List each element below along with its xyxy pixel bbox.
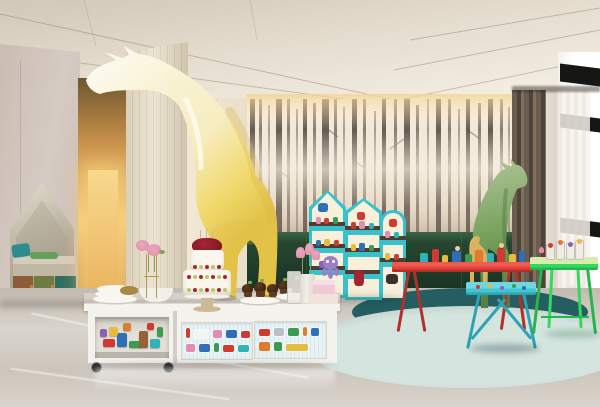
vehicle-sticker (238, 345, 249, 352)
playroom-scene (0, 0, 600, 407)
train-sticker (286, 344, 308, 351)
cart-block (157, 327, 163, 337)
cart-block (123, 323, 131, 331)
cart-floor-shadow (95, 352, 169, 358)
plate (240, 297, 280, 304)
vehicle-sticker (223, 345, 234, 352)
vehicle-sticker (186, 328, 190, 338)
birthday-cake (178, 228, 236, 312)
floor-reflection (95, 368, 335, 392)
vehicle-sticker (303, 327, 307, 336)
tulip (312, 250, 320, 260)
cart-block (103, 339, 115, 347)
toy-cart-opening (95, 317, 169, 358)
vehicle-sticker (259, 342, 270, 351)
vehicle-sticker (311, 328, 319, 336)
cart-block (117, 333, 127, 347)
cabinet-panel-left (181, 322, 253, 360)
cupcake-plate (240, 282, 280, 304)
white-counter (88, 311, 337, 363)
vehicle-sticker (226, 330, 237, 338)
plate (93, 295, 137, 303)
vehicle-sticker (288, 328, 299, 336)
cupcake-garnish (260, 279, 264, 282)
vehicle-sticker (274, 342, 282, 351)
tulip (296, 247, 305, 258)
octopus-eye (332, 260, 335, 263)
tulip-stem (302, 255, 303, 275)
cake-stand-base (193, 306, 221, 312)
cabinet-divider (173, 311, 177, 363)
vehicle-sticker (259, 329, 270, 336)
cart-block (147, 323, 154, 330)
rose-stem (148, 252, 149, 272)
vehicle-sticker (214, 343, 219, 352)
rose-leaf (159, 250, 165, 254)
gift-box-lid (313, 280, 335, 285)
cupcake-base (244, 292, 252, 297)
wire (144, 276, 159, 277)
vehicle-sticker (199, 344, 210, 352)
rose-stem (154, 254, 155, 272)
vehicle-sticker (186, 344, 195, 352)
table-shadow (470, 344, 540, 353)
vehicle-sticker (241, 331, 250, 338)
vehicle-sticker (274, 328, 284, 336)
cake-tier-bottom (183, 270, 231, 296)
octopus-eye (326, 260, 329, 263)
vehicle-sticker (194, 330, 209, 338)
cake-tier-top (190, 250, 224, 272)
gift-boxes (309, 266, 339, 304)
gift-box-bottom (309, 294, 338, 304)
cart-block (100, 329, 107, 337)
vehicle-sticker (213, 330, 222, 338)
cabinet-panel-right (254, 321, 327, 359)
cart-block (150, 339, 160, 348)
cupcake-garnish (248, 281, 252, 284)
cart-block (109, 327, 118, 336)
flower-stand (136, 238, 168, 300)
table-shadow (545, 330, 600, 338)
cart-block (139, 331, 148, 348)
